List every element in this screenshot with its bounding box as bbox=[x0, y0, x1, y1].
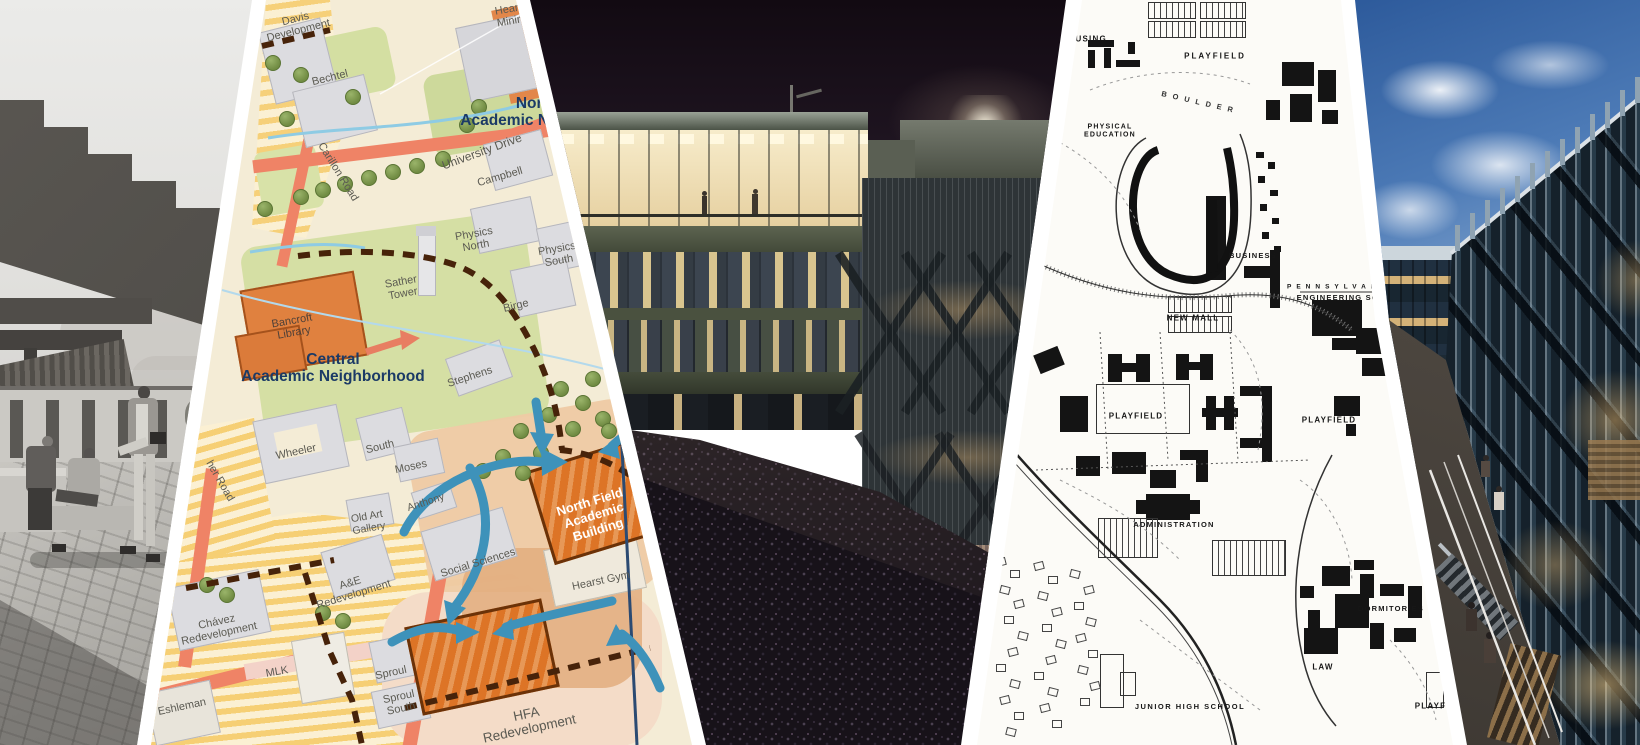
label-housing: HOUSING bbox=[1061, 36, 1107, 45]
building-footprint bbox=[1346, 424, 1356, 436]
label-playfield-mid-left: PLAYFIELD bbox=[1109, 413, 1164, 422]
interior-glow bbox=[1500, 520, 1610, 610]
house-footprint bbox=[996, 664, 1006, 672]
bw-beam bbox=[0, 298, 152, 324]
bw-shoe bbox=[120, 546, 136, 554]
tree-symbol bbox=[475, 463, 491, 479]
building-footprint bbox=[1202, 408, 1238, 417]
building-footprint bbox=[1268, 162, 1275, 169]
tree-symbol bbox=[279, 111, 295, 127]
bw-shadow bbox=[30, 552, 200, 568]
building-footprint bbox=[1196, 460, 1208, 482]
outlined-structure bbox=[1200, 2, 1246, 19]
building-footprint bbox=[1394, 628, 1416, 642]
facade-fin bbox=[1620, 90, 1625, 116]
facade-fin bbox=[1605, 102, 1610, 128]
building-footprint bbox=[1190, 500, 1200, 514]
building-footprint bbox=[1180, 450, 1208, 460]
house-footprint bbox=[1004, 616, 1014, 624]
label-physical-education: PHYSICAL EDUCATION bbox=[1084, 123, 1136, 138]
facade-fin bbox=[1515, 176, 1520, 202]
house-footprint bbox=[1048, 576, 1058, 584]
tree-symbol bbox=[219, 587, 235, 603]
facade-fin bbox=[1545, 151, 1550, 177]
outlined-structure bbox=[1096, 384, 1190, 434]
tree-symbol bbox=[601, 423, 617, 439]
building-footprint bbox=[1128, 42, 1135, 54]
person bbox=[1468, 602, 1475, 609]
wood-soffit bbox=[1588, 440, 1640, 500]
cloud bbox=[1380, 60, 1500, 120]
label-pennsylvania: PENNSYLVANIA bbox=[1287, 283, 1397, 290]
bw-bench bbox=[52, 506, 144, 530]
label-law: LAW bbox=[1312, 664, 1333, 673]
label-administration: ADMINISTRATION bbox=[1133, 521, 1214, 529]
building-footprint bbox=[1370, 623, 1384, 649]
facade-fin bbox=[1590, 114, 1595, 140]
building-footprint bbox=[1262, 232, 1269, 239]
building-footprint bbox=[1290, 94, 1312, 122]
building-footprint bbox=[1322, 566, 1350, 586]
label-playfield-north: PLAYFIELD bbox=[1184, 53, 1246, 62]
building-footprint bbox=[1206, 196, 1226, 280]
building-footprint bbox=[1112, 452, 1146, 474]
tree-symbol bbox=[553, 381, 569, 397]
facade-fin bbox=[1635, 77, 1640, 103]
label-new-mall: NEW MALL bbox=[1167, 315, 1220, 324]
facade-fin bbox=[1560, 139, 1565, 165]
label-central-neighborhood: Central Academic Neighborhood bbox=[241, 351, 424, 385]
building-footprint bbox=[1146, 494, 1190, 520]
label-business: BUSINESS bbox=[1229, 252, 1277, 260]
building-footprint bbox=[1240, 386, 1266, 396]
building-footprint bbox=[1322, 110, 1338, 124]
tree-symbol bbox=[293, 189, 309, 205]
facade-fin bbox=[1455, 225, 1460, 251]
bw-book bbox=[150, 432, 166, 444]
rooftop-block bbox=[900, 120, 1070, 178]
cloud bbox=[1490, 40, 1610, 90]
building-footprint bbox=[1312, 300, 1362, 336]
outlined-structure bbox=[1120, 672, 1136, 696]
building-footprint bbox=[1380, 584, 1404, 596]
tree-symbol bbox=[315, 182, 331, 198]
tree-symbol bbox=[361, 170, 377, 186]
balcony-rail bbox=[528, 214, 868, 217]
balcony-person bbox=[752, 194, 758, 216]
facade-fin bbox=[1575, 127, 1580, 153]
building-mullions bbox=[528, 130, 868, 226]
bw-person-sitting bbox=[26, 446, 56, 492]
cloud bbox=[1360, 180, 1460, 240]
building-roofband bbox=[528, 112, 868, 130]
outlined-structure bbox=[1148, 21, 1196, 38]
building-footprint bbox=[1244, 266, 1278, 278]
facade-fin bbox=[1500, 188, 1505, 214]
building-footprint bbox=[1354, 560, 1374, 570]
building-footprint bbox=[1240, 438, 1272, 448]
tree-symbol bbox=[265, 55, 281, 71]
tree-symbol bbox=[257, 201, 273, 217]
building-footprint bbox=[1332, 338, 1358, 350]
building-footprint bbox=[1060, 396, 1088, 432]
person bbox=[1494, 492, 1504, 510]
tree-symbol bbox=[515, 465, 531, 481]
building-footprint bbox=[1304, 628, 1338, 654]
building-footprint bbox=[1262, 386, 1272, 462]
bw-shoe bbox=[146, 554, 160, 562]
building-footprint bbox=[1260, 204, 1267, 211]
tree-symbol bbox=[533, 445, 549, 461]
bw-person-standing bbox=[146, 454, 155, 546]
building-footprint bbox=[1270, 190, 1278, 196]
facade-fin bbox=[1485, 200, 1490, 226]
tree-symbol bbox=[585, 371, 601, 387]
bw-opening bbox=[10, 400, 23, 458]
building-footprint bbox=[1136, 500, 1146, 514]
map-sather-tower bbox=[418, 232, 436, 296]
facade-fin bbox=[1470, 213, 1475, 239]
building-footprint bbox=[1258, 176, 1265, 183]
label-junior-high-school: JUNIOR HIGH SCHOOL bbox=[1135, 703, 1245, 711]
roof-mast bbox=[790, 85, 793, 115]
tree-symbol bbox=[335, 613, 351, 629]
building-footprint bbox=[1120, 363, 1138, 372]
tree-symbol bbox=[621, 445, 637, 461]
building-footprint bbox=[1136, 354, 1150, 382]
house-footprint bbox=[1052, 720, 1062, 728]
building-footprint bbox=[1116, 60, 1140, 67]
building-footprint bbox=[1356, 328, 1388, 354]
person bbox=[1481, 461, 1490, 477]
tree-symbol bbox=[199, 577, 215, 593]
house-footprint bbox=[1080, 698, 1090, 706]
house-footprint bbox=[1010, 570, 1020, 578]
building-footprint bbox=[1187, 362, 1202, 370]
map-building bbox=[291, 632, 355, 704]
house-footprint bbox=[1034, 672, 1044, 680]
tree-symbol bbox=[409, 158, 425, 174]
tree-symbol bbox=[293, 67, 309, 83]
tree-symbol bbox=[385, 164, 401, 180]
bw-person-standing bbox=[134, 454, 143, 540]
building-footprint bbox=[1104, 48, 1111, 68]
person bbox=[1466, 609, 1477, 631]
outlined-structure bbox=[1212, 540, 1286, 576]
building-band bbox=[528, 226, 868, 252]
outlined-structure bbox=[1200, 21, 1246, 38]
tree-symbol bbox=[575, 395, 591, 411]
bw-shoe bbox=[52, 544, 66, 552]
left-wing-roof bbox=[1352, 246, 1464, 260]
building-footprint bbox=[1300, 586, 1314, 598]
house-footprint bbox=[1014, 712, 1024, 720]
map-sather-tower bbox=[416, 226, 436, 236]
outlined-structure bbox=[1148, 2, 1196, 19]
building-footprint bbox=[1318, 70, 1336, 102]
tree-symbol bbox=[495, 449, 511, 465]
building-footprint bbox=[1282, 62, 1314, 86]
interior-glow bbox=[1596, 240, 1640, 320]
tree-symbol bbox=[345, 89, 361, 105]
tree-symbol bbox=[513, 423, 529, 439]
campus-collage: Davis DevelopmentHearst MiningBechtelNor… bbox=[0, 0, 1640, 745]
building-footprint bbox=[1150, 470, 1176, 488]
building-footprint bbox=[1362, 358, 1386, 376]
label-hearst-mining: Hearst Mining bbox=[494, 0, 530, 29]
label-playfield-mid-right: PLAYFIELD bbox=[1302, 417, 1357, 426]
building-footprint bbox=[1256, 152, 1264, 158]
tree-symbol bbox=[541, 407, 557, 423]
person bbox=[1486, 632, 1493, 639]
building-footprint bbox=[1088, 50, 1095, 68]
tree-symbol bbox=[565, 421, 581, 437]
outlined-structure bbox=[1168, 296, 1232, 313]
person bbox=[1484, 639, 1496, 663]
building-footprint bbox=[1266, 100, 1280, 120]
balcony-person bbox=[702, 196, 707, 216]
label-dormitories: DORMITORIES bbox=[1358, 605, 1424, 613]
house-footprint bbox=[1088, 650, 1098, 658]
building-footprint bbox=[1076, 456, 1100, 476]
building-footprint bbox=[1408, 586, 1422, 618]
bw-person-sitting bbox=[28, 488, 52, 530]
house-footprint bbox=[1074, 602, 1084, 610]
facade-fin bbox=[1530, 163, 1535, 189]
building-footprint bbox=[1334, 396, 1360, 416]
building-footprint bbox=[1272, 218, 1279, 224]
house-footprint bbox=[1042, 624, 1052, 632]
